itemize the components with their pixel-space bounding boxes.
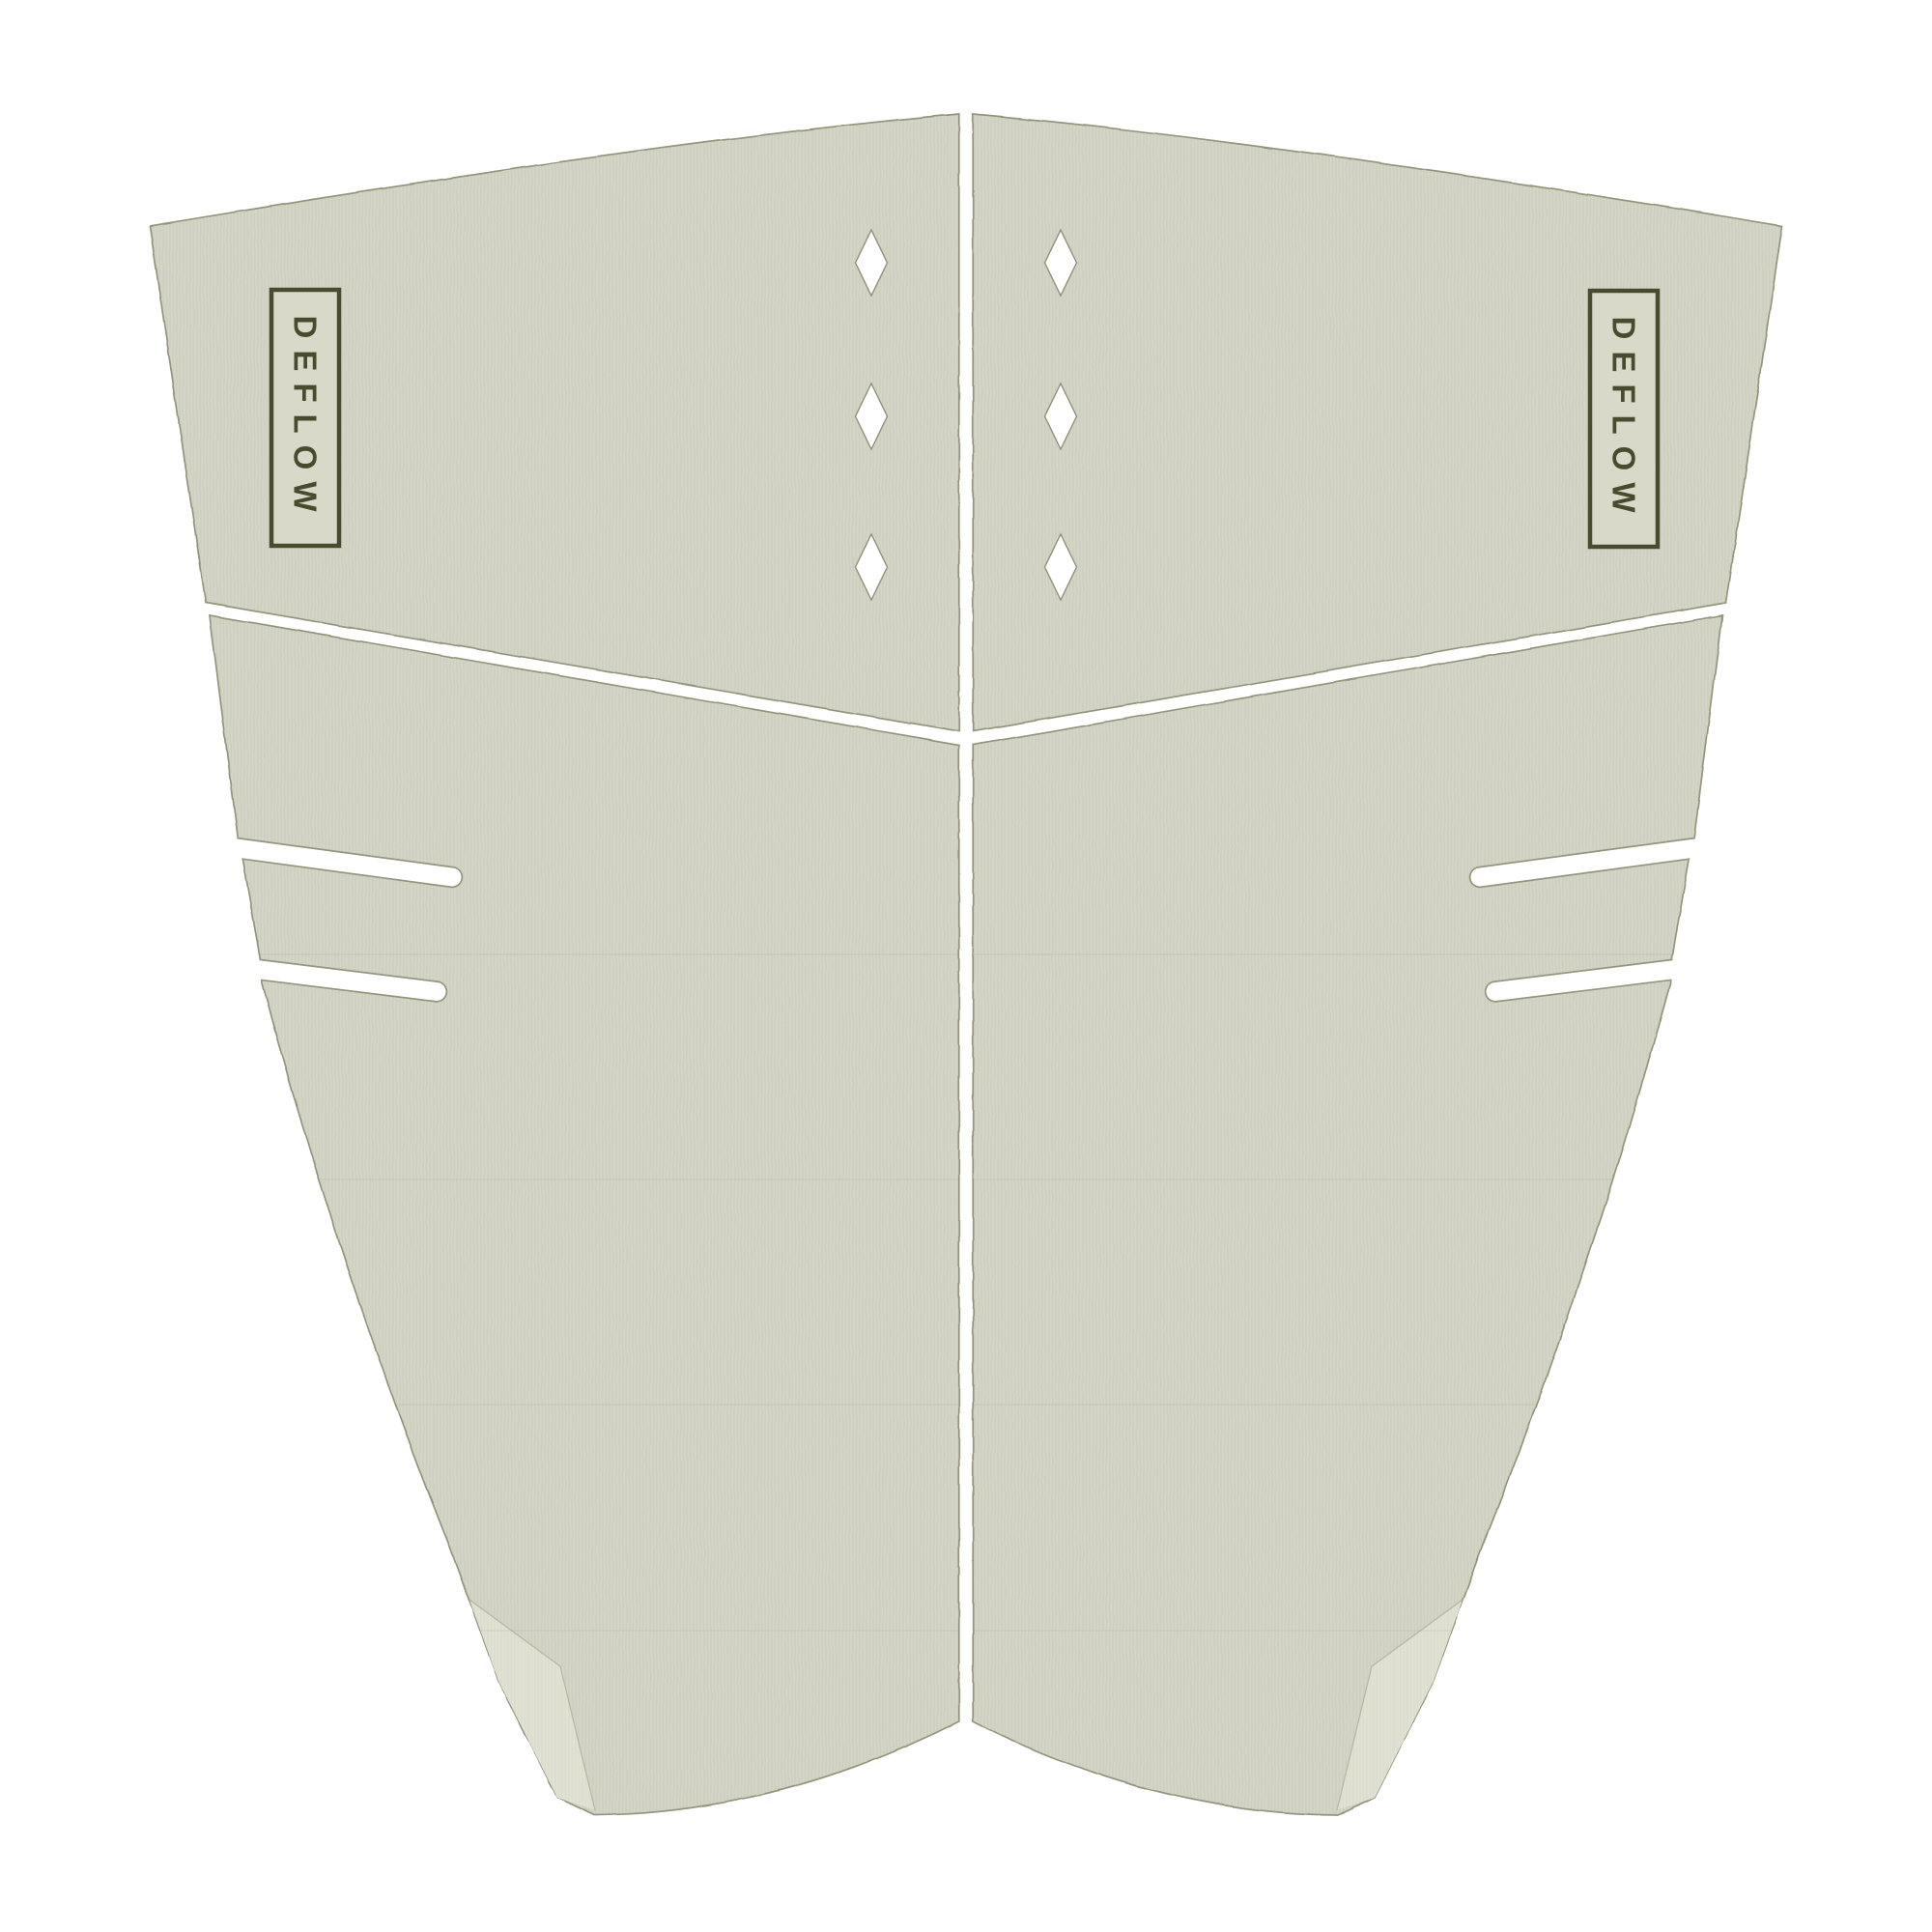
svg-text:DEFLOW: DEFLOW <box>288 316 324 524</box>
svg-text:DEFLOW: DEFLOW <box>1606 317 1642 525</box>
